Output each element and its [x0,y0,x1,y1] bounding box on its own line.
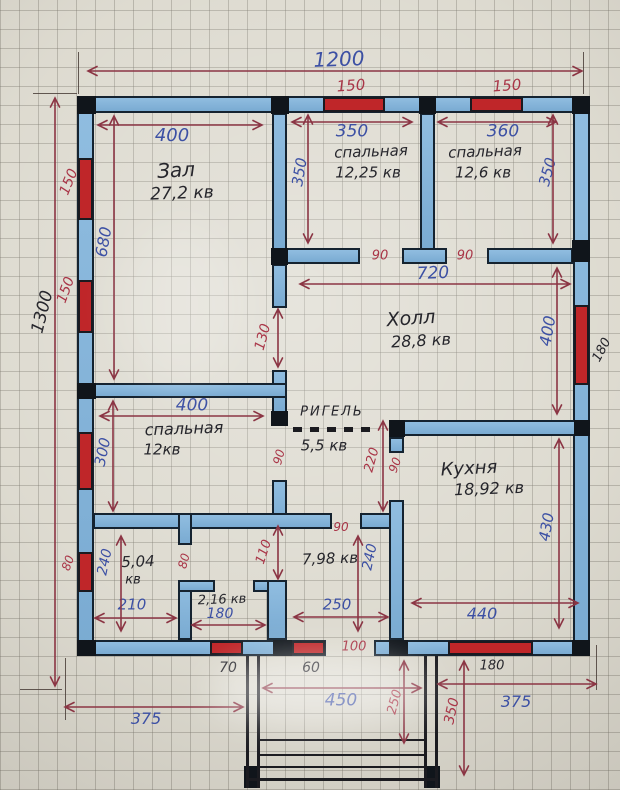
dimension-arrow [379,421,388,511]
dimension-arrow [51,98,60,686]
dimension-arrow [304,115,313,243]
dimension-arrow [274,309,283,367]
dimension-arrow [95,614,176,623]
dimension-arrow [438,680,596,689]
dimension-arrow [460,661,469,775]
dimension-arrow [553,268,562,414]
dimension-arrow [100,412,263,421]
dimension-arrow [109,401,118,511]
dimension-arrow [555,439,564,628]
dimension-arrow [549,115,558,243]
dimension-arrow [192,621,265,630]
dimension-arrow [117,536,126,631]
dimension-arrow [438,118,556,127]
camera-glare [120,225,240,385]
dimension-arrow [300,280,570,289]
dimension-arrow [110,116,119,379]
dimension-arrow [65,703,243,712]
dimension-arrow [274,526,283,579]
dimension-arrow [98,121,262,130]
graph-paper-photo: 1200150150400350360Зал27,2 квспальная12,… [0,0,620,790]
camera-glare [210,655,430,725]
dimension-arrow [412,599,578,608]
dimension-arrow [88,67,582,76]
dimension-arrow [294,613,388,622]
